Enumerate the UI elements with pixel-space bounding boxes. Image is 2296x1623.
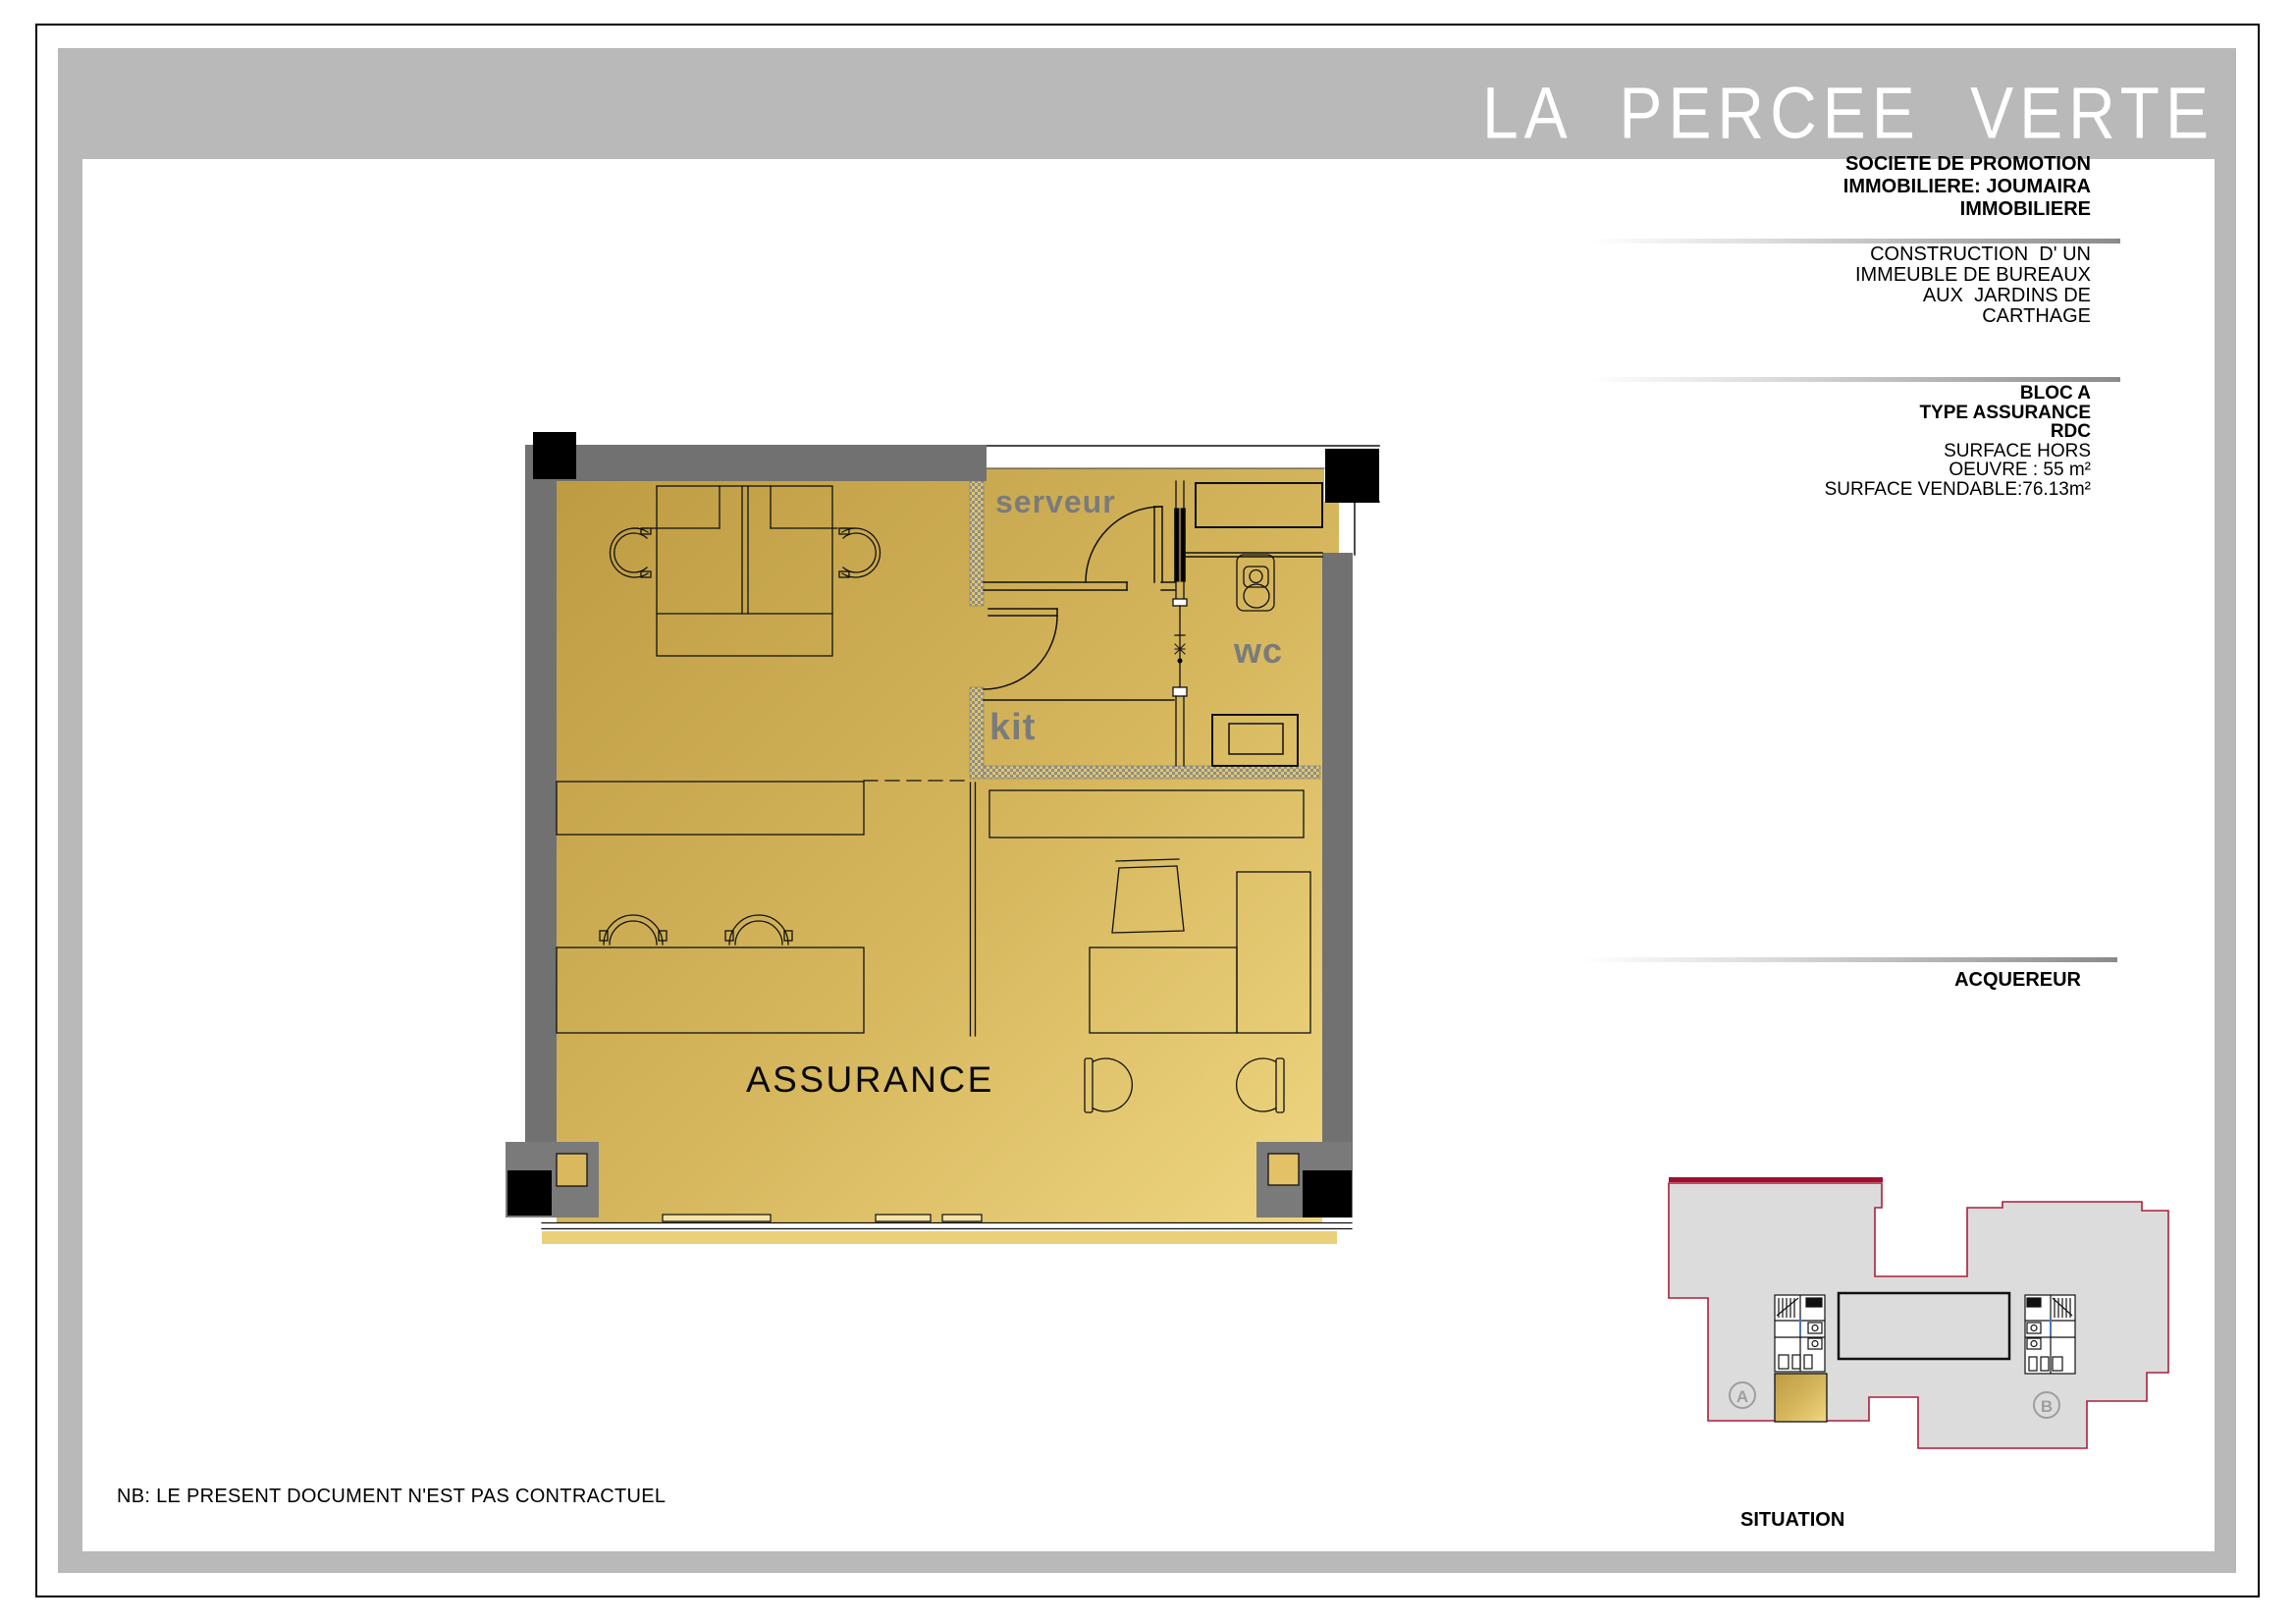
central-void [1839, 1293, 2009, 1359]
corner-block-left [506, 1142, 599, 1217]
column-top-right [1325, 449, 1379, 503]
wall-right [1322, 553, 1353, 1217]
room-label-wc: wc [1233, 630, 1283, 671]
hatched-wall-south [984, 766, 1320, 779]
room-label-serveur: serveur [995, 484, 1116, 519]
highlighted-unit [1775, 1374, 1827, 1422]
block-b-letter: B [2041, 1397, 2053, 1416]
hatched-wall-serveur [970, 481, 984, 606]
footprint-top-edge [1669, 1177, 1883, 1182]
room-label-main: ASSURANCE [746, 1059, 994, 1100]
situation-plan: A B [1669, 1177, 2168, 1448]
wall-left [525, 445, 557, 1217]
block-a-letter: A [1736, 1387, 1748, 1406]
room-label-kit: kit [989, 707, 1036, 748]
floor-area [557, 468, 1339, 1222]
wall-top [525, 445, 987, 481]
floor-plan: serveur wc kit ASSURANCE [506, 432, 1379, 1244]
core-a [1775, 1295, 1825, 1372]
terrace-strip [542, 1231, 1337, 1244]
drawing-layer: serveur wc kit ASSURANCE [0, 0, 2296, 1623]
hatched-wall-kit [970, 687, 984, 779]
core-b [2025, 1295, 2075, 1374]
entry-door-leaf [1175, 509, 1179, 581]
corner-block-right [1256, 1142, 1352, 1217]
entry-door-leaf [1181, 509, 1185, 581]
document-page: { "header": { "title": "LA PERCEE VERTE"… [0, 0, 2296, 1623]
column-top-left [533, 432, 576, 479]
